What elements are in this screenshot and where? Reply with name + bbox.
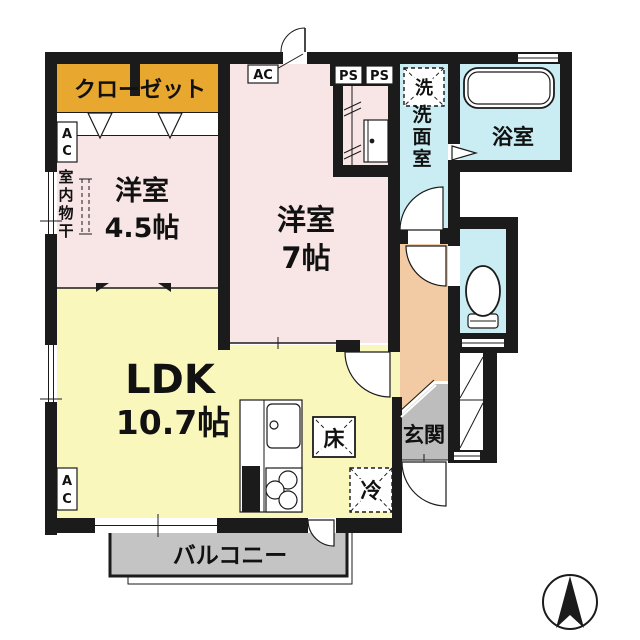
refrigerator-label: 冷: [361, 479, 382, 503]
closet-door-triangle-1: [88, 113, 112, 138]
faucet-icon: [270, 421, 278, 429]
toilet: [466, 266, 500, 328]
burner-icon: [279, 491, 297, 509]
ac-char: C: [62, 492, 72, 507]
ps-label-1: PS: [339, 69, 358, 84]
entrance-door: [402, 462, 446, 506]
laundry-char: 内: [58, 186, 73, 204]
porch-hatch: [460, 353, 483, 450]
washing-machine-box: 洗: [404, 68, 444, 106]
closet-door-triangle-2: [158, 113, 182, 138]
window-toilet: [462, 339, 504, 347]
bedroom-4-5-area: [57, 136, 218, 288]
closet-folding-doors: [57, 113, 222, 139]
ac-char: A: [62, 474, 72, 489]
ac-label: AC: [253, 68, 273, 83]
washroom-char: 洗: [412, 103, 431, 126]
closet-label: クローゼット: [74, 78, 206, 103]
bedroom7-exterior-door-arc: [281, 28, 305, 52]
bathroom-label: 浴室: [492, 125, 534, 149]
washing-machine-label: 洗: [415, 77, 433, 99]
bedroom45-label: 洋室: [115, 175, 169, 207]
ac-bedroom45: A C: [57, 122, 77, 162]
laundry-char: 物: [58, 204, 73, 222]
floor-storage-label: 床: [324, 427, 345, 451]
laundry-char: 室: [58, 168, 73, 186]
ldk-size: 10.7帖: [116, 403, 230, 442]
ac-char: C: [62, 144, 72, 159]
window-bathroom: [518, 54, 558, 62]
bathtub: [464, 68, 554, 108]
bedroom45-size: 4.5帖: [105, 213, 180, 244]
bedroom7-label: 洋室: [277, 203, 335, 237]
ps-label-2: PS: [370, 69, 389, 84]
ac-char: A: [62, 127, 72, 142]
ac-ldk: A C: [57, 468, 77, 510]
ldk-label: LDK: [125, 357, 217, 403]
north-arrow-icon: [543, 575, 597, 629]
bedroom7-size: 7帖: [281, 241, 330, 275]
balcony-label: バルコニー: [173, 543, 288, 569]
washroom-char: 室: [412, 147, 431, 170]
floor-storage-box: 床: [313, 417, 355, 457]
floor-plan: PS PS: [0, 0, 640, 640]
refrigerator-box: 冷: [350, 468, 392, 512]
floor-plan-drawing: PS PS: [0, 0, 640, 640]
knob-dot: [370, 139, 375, 144]
kitchen-unit: [240, 400, 302, 512]
washroom-char: 面: [412, 126, 431, 148]
window-porch: [454, 452, 480, 460]
entrance-label: 玄関: [403, 423, 445, 447]
laundry-char: 干: [58, 222, 73, 240]
